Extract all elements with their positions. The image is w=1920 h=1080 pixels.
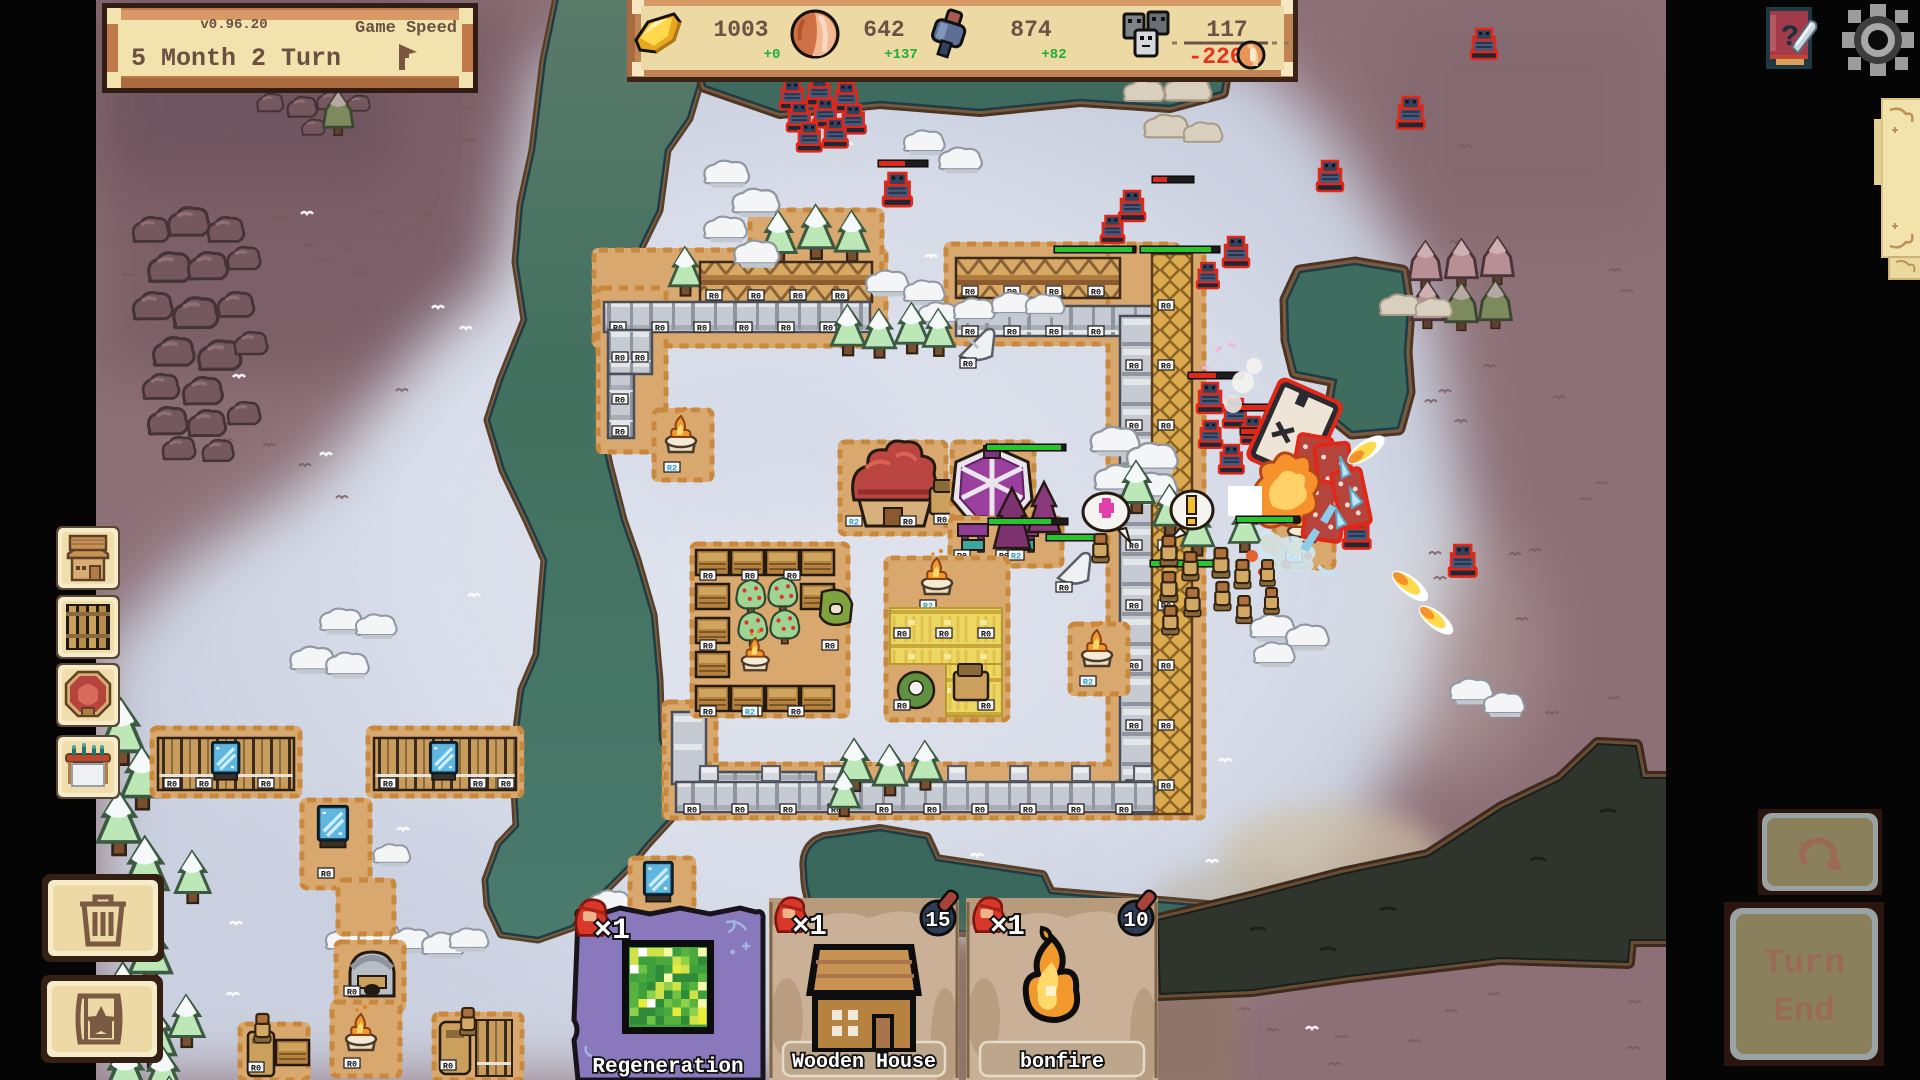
svg-text:642: 642 bbox=[863, 17, 904, 43]
svg-text:+82: +82 bbox=[1041, 47, 1066, 63]
svg-text:+137: +137 bbox=[884, 47, 918, 63]
svg-text:×1: ×1 bbox=[792, 910, 827, 943]
svg-text:Regeneration: Regeneration bbox=[592, 1056, 743, 1079]
svg-text:Game Speed: Game Speed bbox=[355, 19, 457, 38]
svg-text:Turn: Turn bbox=[1763, 945, 1845, 983]
svg-text:10: 10 bbox=[1123, 910, 1148, 933]
svg-text:×1: ×1 bbox=[990, 910, 1025, 943]
svg-text:bonfire: bonfire bbox=[1020, 1051, 1104, 1074]
svg-text:Wooden House: Wooden House bbox=[792, 1051, 936, 1074]
svg-text:117: 117 bbox=[1206, 17, 1247, 43]
svg-text:1003: 1003 bbox=[713, 17, 768, 43]
svg-text:v0.96.20: v0.96.20 bbox=[200, 17, 267, 33]
svg-text:5 Month 2 Turn: 5 Month 2 Turn bbox=[131, 44, 341, 73]
svg-text:End: End bbox=[1773, 993, 1834, 1031]
svg-text:15: 15 bbox=[925, 910, 950, 933]
svg-text:-226: -226 bbox=[1188, 44, 1243, 70]
svg-text:+0: +0 bbox=[764, 47, 781, 63]
svg-text:×1: ×1 bbox=[594, 914, 630, 948]
svg-text:874: 874 bbox=[1010, 17, 1052, 43]
